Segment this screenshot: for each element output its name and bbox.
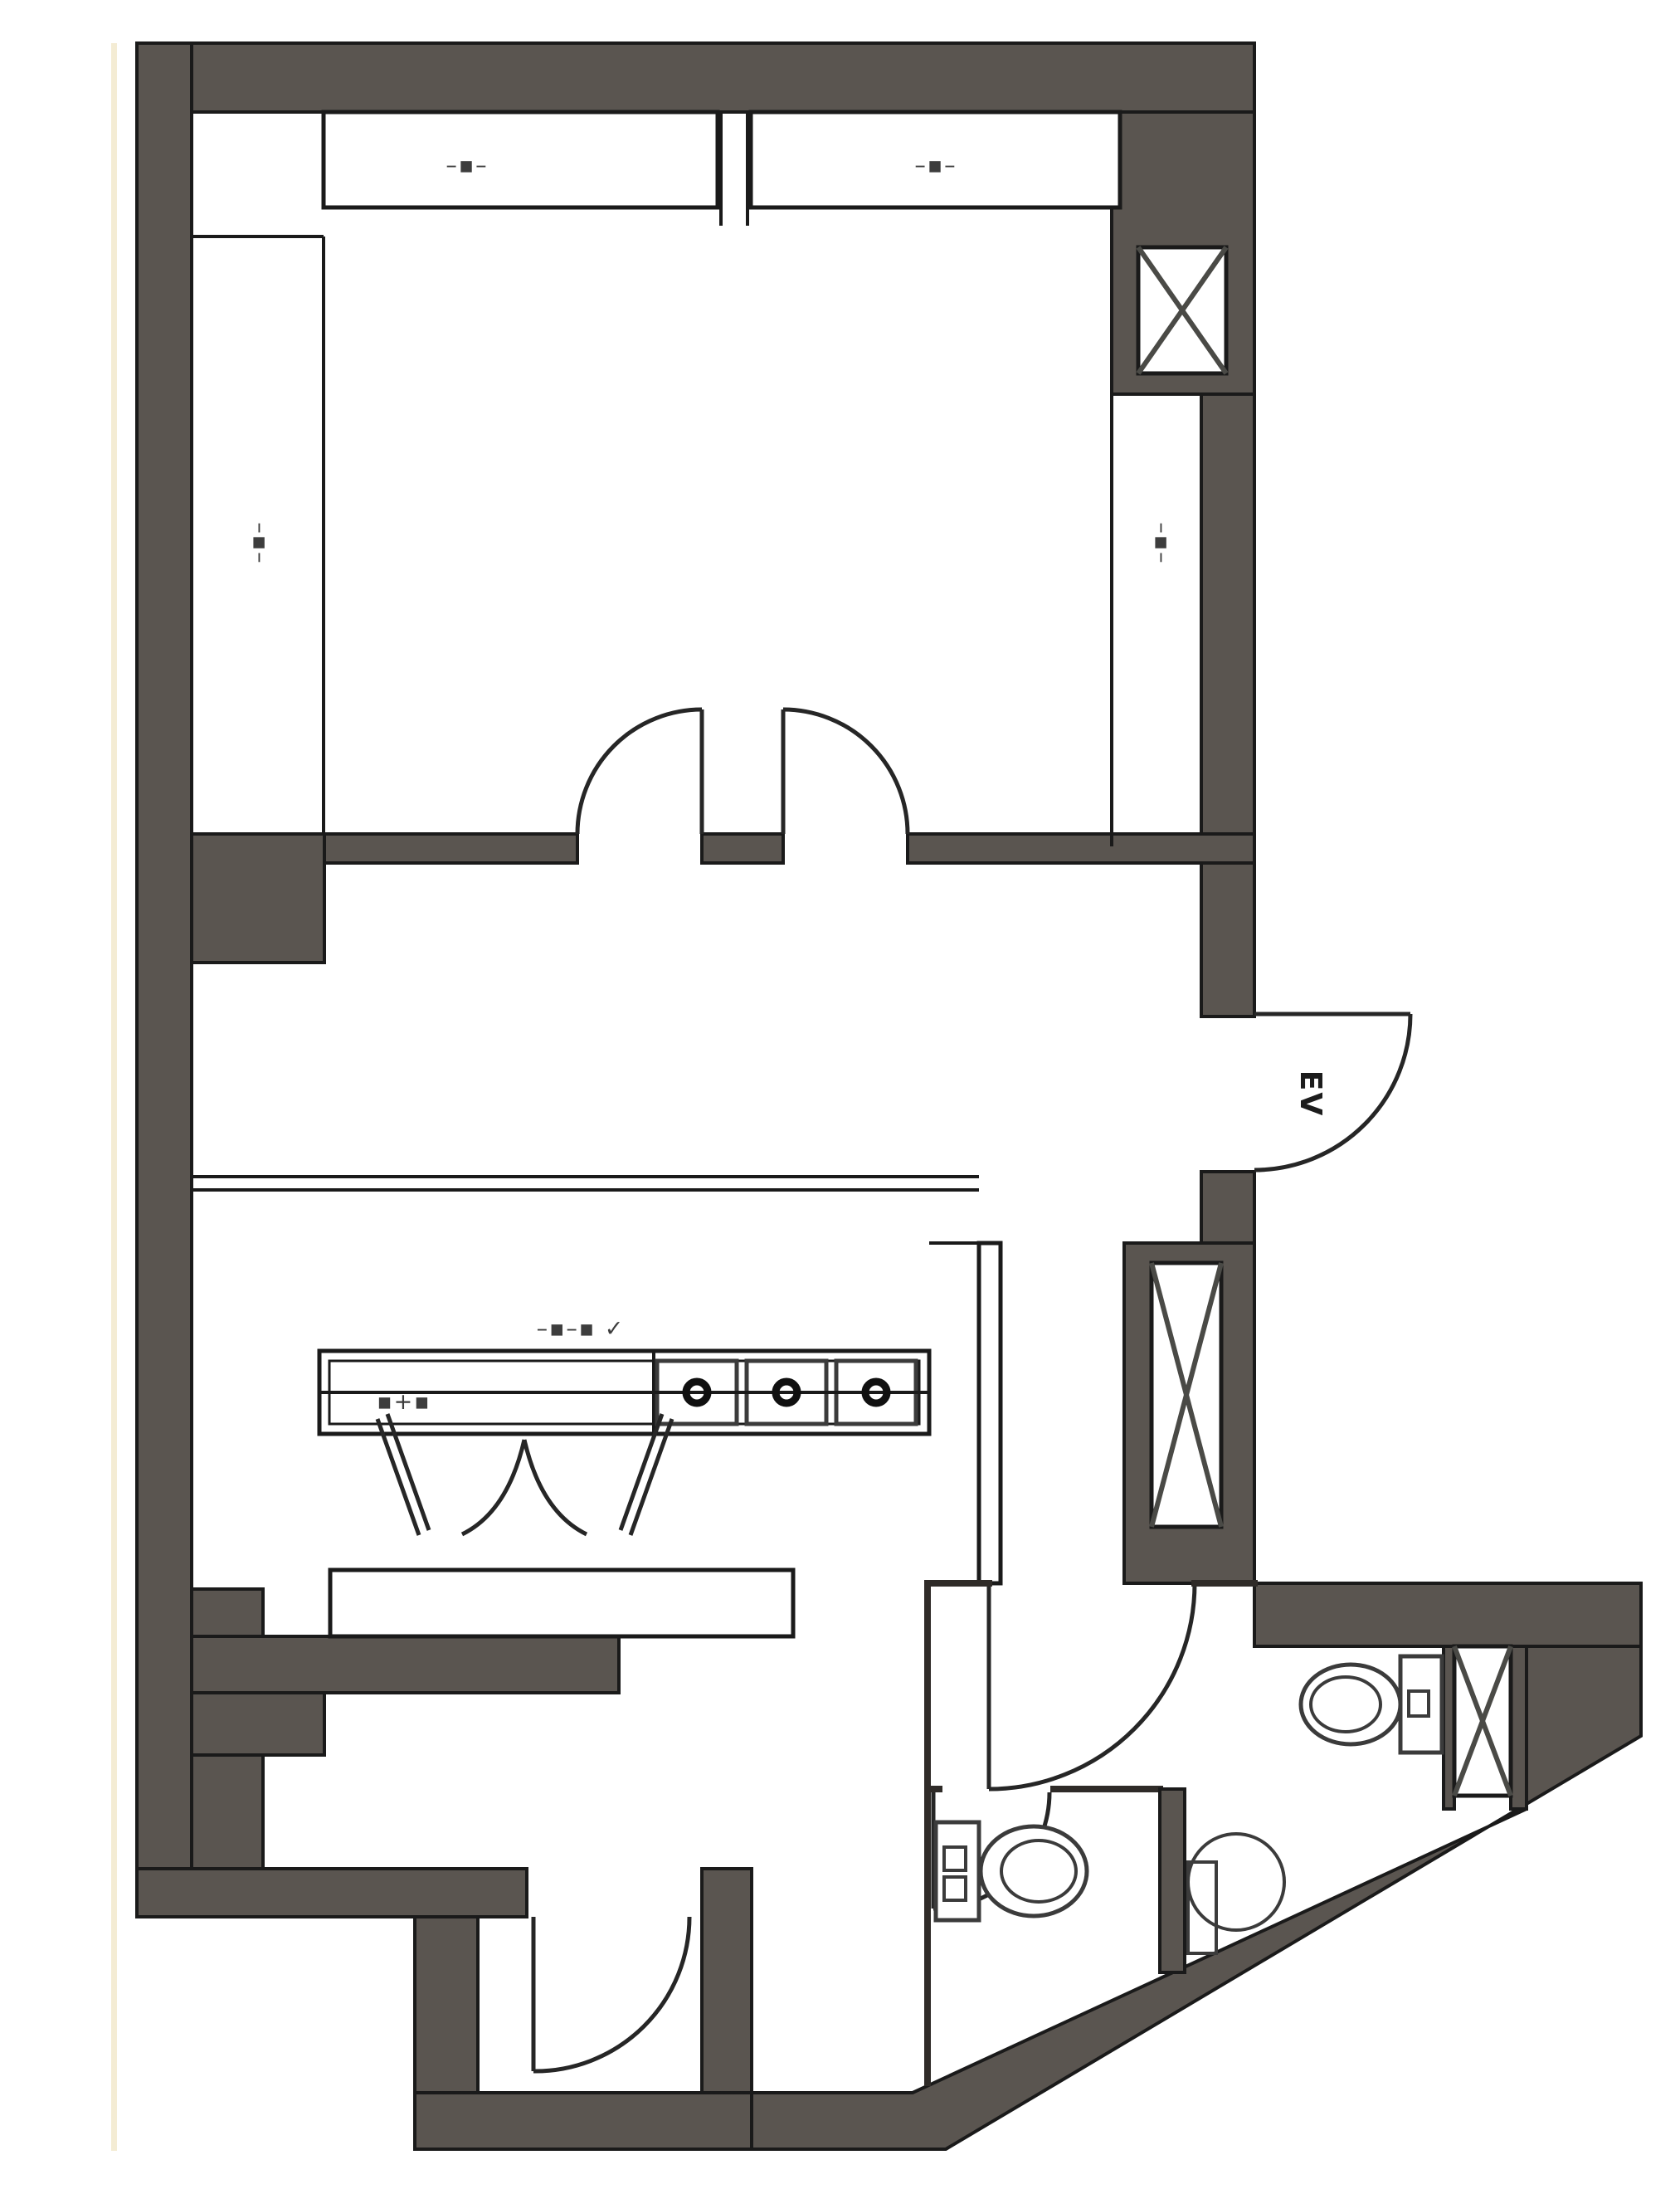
shaft-bottom-right (1454, 1646, 1511, 1796)
wall-left (137, 43, 192, 1917)
door-arc-vestibule (533, 1917, 689, 2071)
shaft-right-middle (1152, 1263, 1221, 1527)
wall-vestibule-left (415, 1917, 478, 2099)
shaft-top-right (1138, 247, 1226, 373)
floor-plan-drawing: –▪– –▪– –▪– –▪– –▪–▪ ✓ ▪+▪ EV (0, 0, 1680, 2189)
wall-bottom-left (137, 1869, 527, 1917)
label-elevator: EV (1293, 1070, 1327, 1117)
toilet-left-wc (936, 1822, 1087, 1920)
wall-middle-c (908, 834, 1254, 863)
wall-vestibule-right (702, 1869, 752, 2093)
top-room (192, 112, 1201, 846)
double-door-arc-right (524, 1440, 587, 1534)
wc-divider-wall (1160, 1789, 1185, 1972)
wall-top (137, 43, 1254, 112)
basin-cabinet (1188, 1862, 1216, 1953)
wall-shaft3-right (1511, 1646, 1527, 1809)
wall-left-mid-block (192, 834, 324, 963)
double-door-leaf-right (631, 1419, 672, 1535)
scan-edge-artifact (111, 43, 117, 2151)
floor-plan-page: –▪– –▪– –▪– –▪– –▪–▪ ✓ ▪+▪ EV (0, 0, 1680, 2189)
closet-top-left (324, 112, 718, 207)
wall-vestibule-bottom (415, 2093, 752, 2149)
toilet-tank (1400, 1656, 1442, 1753)
label-column-right: –▪– (1149, 522, 1175, 564)
outer-walls (137, 43, 1641, 2149)
toilet-right-wc (1301, 1656, 1442, 1753)
door-arc-room-left (577, 709, 702, 834)
door-arc-room-right (783, 709, 908, 834)
kitchen (192, 1177, 1001, 1636)
door-arc-washroom (989, 1583, 1195, 1789)
wall-low-band (192, 1636, 619, 1693)
wall-right-below-door (1201, 1172, 1254, 1243)
label-closet-top-left: –▪– (446, 153, 488, 178)
wall-right-upper (1201, 394, 1254, 834)
label-closet-top-right: –▪– (914, 153, 957, 178)
label-kitchen-note: –▪–▪ ✓ (537, 1316, 626, 1342)
bench-shelf (330, 1570, 793, 1636)
partition-wall (979, 1243, 1001, 1583)
label-counter-units: ▪+▪ (377, 1389, 431, 1415)
double-door-arc-left (462, 1440, 524, 1534)
label-column-left: –▪– (247, 522, 273, 564)
wall-middle-b (702, 834, 783, 863)
wall-low-step (192, 1693, 324, 1755)
wash-basin (1188, 1834, 1284, 1930)
wall-bottom-right-band (1254, 1583, 1641, 1646)
door-arc-entry-ev (1254, 1014, 1410, 1170)
double-door-leaf-left (377, 1419, 419, 1535)
wall-middle-a (324, 834, 577, 863)
